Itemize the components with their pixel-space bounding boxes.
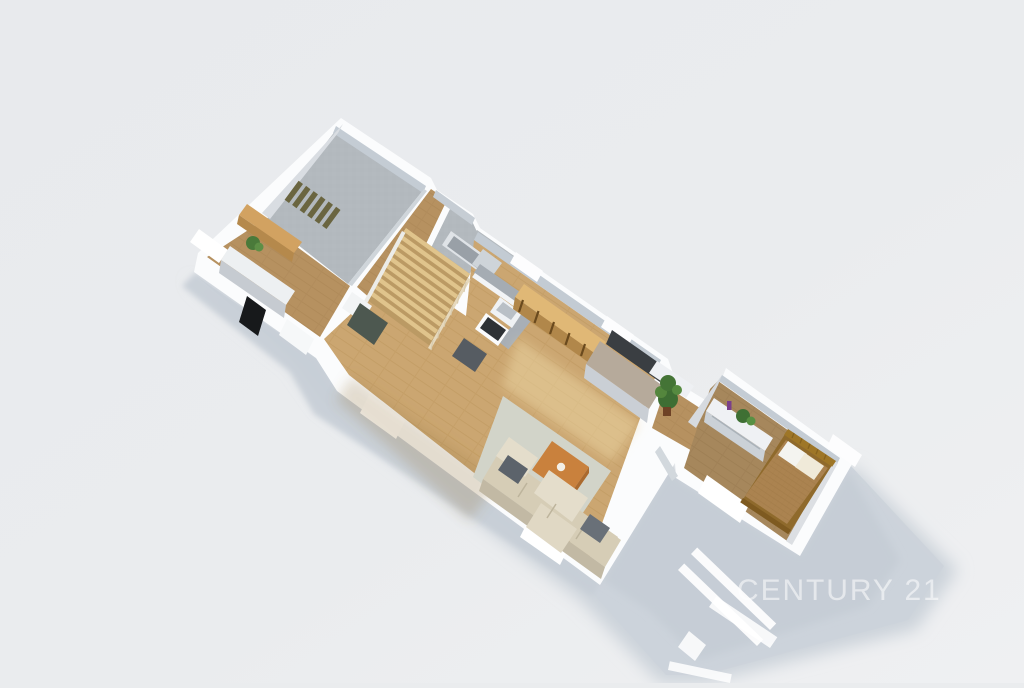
- svg-text:CENTURY 21: CENTURY 21: [737, 574, 942, 607]
